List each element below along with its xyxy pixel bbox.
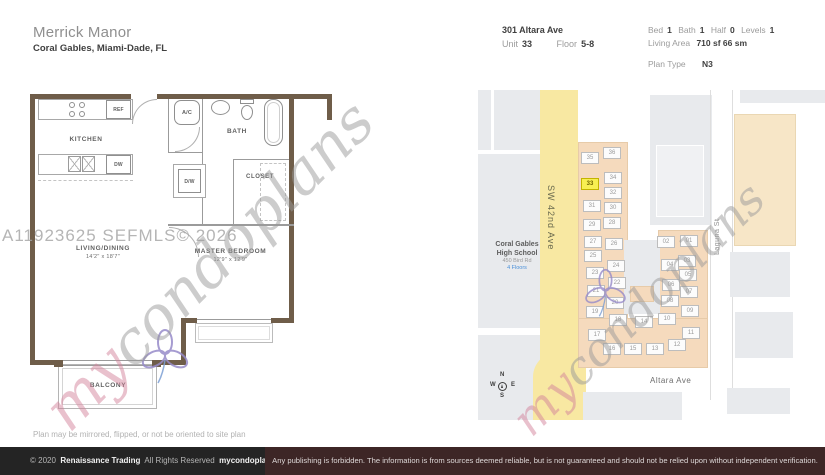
siteplan: SW 42nd Ave Laguna St Altara Ave 0102030… (478, 90, 825, 420)
stove-burner (79, 111, 85, 117)
interior-wall (233, 159, 234, 225)
compass-e: E (511, 382, 515, 388)
wall-segment (327, 94, 332, 120)
footer-company: Renaissance Trading (60, 456, 140, 465)
site-unit-27: 27 (584, 236, 602, 248)
levels-label: Levels (741, 25, 766, 35)
site-unit-17: 17 (588, 329, 606, 341)
school-line1: Coral Gables (486, 240, 548, 249)
site-unit-14: 14 (635, 316, 653, 328)
living-dining-label: LIVING/DINING (63, 245, 143, 252)
dishwasher: DW (106, 155, 131, 174)
toilet-bowl (241, 105, 253, 120)
stove-burner (79, 102, 85, 108)
site-unit-31: 31 (583, 200, 601, 212)
site-unit-02: 02 (657, 236, 675, 248)
site-unit-08: 08 (661, 295, 679, 307)
footer-copyright-line: © 2020 Renaissance Trading All Rights Re… (30, 447, 281, 475)
site-unit-26: 26 (605, 238, 623, 250)
footer-year: © 2020 (30, 456, 56, 465)
toilet-tank (240, 99, 254, 104)
floor-label: Floor (557, 39, 578, 49)
kitchen-label: KITCHEN (46, 136, 126, 143)
kitchen-sink (68, 156, 81, 172)
site-unit-16: 16 (603, 343, 621, 355)
living-area-value: 710 sf 66 sm (696, 38, 747, 48)
bath-value: 1 (700, 25, 705, 35)
site-unit-06: 06 (662, 279, 680, 291)
site-unit-09: 09 (681, 305, 699, 317)
bed-value: 1 (667, 25, 672, 35)
mls-watermark: A11923625 SEFMLS© 2026 (2, 226, 238, 246)
living-dining-dims: 14'2" x 18'7" (63, 254, 143, 260)
floorplan: REF DW KITCHEN A/C D/W BATH CLOSET LIVIN… (28, 90, 340, 424)
master-bedroom-dims: 12'9" x 12'9" (188, 257, 273, 263)
compass-n: N (500, 372, 504, 378)
site-unit-04: 04 (661, 259, 679, 271)
school-label: Coral Gables High School 450 Bird Rd 4 F… (486, 240, 548, 272)
page: Merrick Manor Coral Gables, Miami-Dade, … (0, 0, 825, 475)
site-unit-32: 32 (604, 187, 622, 199)
stats-block: Bed1 Bath1 Half0 Levels1 Living Area 710… (648, 25, 778, 69)
site-unit-36: 36 (603, 147, 621, 159)
school-line4: 4 Floors (486, 265, 548, 272)
site-unit-28: 28 (603, 217, 621, 229)
wall-segment (289, 94, 294, 323)
living-area-label: Living Area (648, 38, 690, 48)
school-line2: High School (486, 249, 548, 258)
page-title: Merrick Manor (33, 24, 167, 41)
half-value: 0 (730, 25, 735, 35)
school-line3: 450 Bird Rd (486, 258, 548, 265)
bath-door-arc (175, 127, 200, 152)
site-unit-29: 29 (583, 219, 601, 231)
unit-label: Unit (502, 39, 518, 49)
master-bedroom-label: MASTER BEDROOM (188, 248, 273, 255)
footer-disclaimer-panel: Any publishing is forbidden. The informa… (265, 447, 825, 475)
interior-wall (168, 99, 169, 152)
site-unit-30: 30 (604, 202, 622, 214)
stove-burner (69, 102, 75, 108)
address-block: 301 Altara Ave Unit33 Floor5-8 (502, 25, 598, 49)
site-unit-03: 03 (678, 255, 696, 267)
levels-value: 1 (770, 25, 775, 35)
entry-door-arc (132, 99, 157, 124)
balcony-label: BALCONY (73, 382, 143, 389)
trillium-flower-watermark (140, 328, 190, 385)
compass: N W E S (490, 372, 516, 404)
address: 301 Altara Ave (502, 25, 598, 35)
wall-segment (54, 360, 63, 367)
site-unit-35: 35 (581, 152, 599, 164)
compass-rose-icon (498, 382, 507, 391)
bath-label: BATH (211, 128, 263, 135)
unit-value: 33 (522, 39, 532, 49)
site-unit-34: 34 (604, 172, 622, 184)
bed-label: Bed (648, 25, 663, 35)
ac-closet: A/C (174, 100, 200, 125)
site-unit-01: 01 (680, 235, 698, 247)
site-unit-12: 12 (668, 339, 686, 351)
building-header: Merrick Manor Coral Gables, Miami-Dade, … (33, 24, 167, 54)
plan-orientation-note: Plan may be mirrored, flipped, or not be… (33, 430, 246, 439)
footer-bar: © 2020 Renaissance Trading All Rights Re… (0, 447, 825, 475)
site-unit-33: 33 (581, 178, 599, 190)
compass-w: W (490, 382, 496, 388)
interior-wall (202, 99, 203, 225)
washer-dryer: D/W (178, 169, 201, 193)
bath-sink (211, 100, 230, 115)
site-unit-07: 07 (680, 286, 698, 298)
bedroom-terrace-rail-inner (198, 326, 270, 340)
counter-overhang (38, 180, 133, 181)
site-unit-05: 05 (679, 269, 697, 281)
interior-wall (168, 152, 203, 153)
footer-rights: All Rights Reserved (144, 456, 214, 465)
refrigerator: REF (106, 100, 131, 119)
site-unit-11: 11 (682, 327, 700, 339)
kitchen-sink (82, 156, 95, 172)
footer-disclaimer: Any publishing is forbidden. The informa… (265, 447, 825, 475)
compass-s: S (500, 393, 504, 399)
stove-burner (69, 111, 75, 117)
site-unit-15: 15 (624, 343, 642, 355)
half-label: Half (711, 25, 726, 35)
interior-wall (233, 159, 289, 160)
bath-label: Bath (678, 25, 696, 35)
floor-value: 5-8 (581, 39, 594, 49)
wall-segment (271, 318, 294, 323)
site-unit-10: 10 (658, 313, 676, 325)
trillium-flower-watermark (583, 268, 628, 318)
page-subtitle: Coral Gables, Miami-Dade, FL (33, 43, 167, 54)
bathtub-inner (267, 102, 280, 143)
plan-type-label: Plan Type (648, 59, 686, 69)
plan-type-value: N3 (702, 59, 713, 69)
closet-shelving (260, 163, 286, 221)
compass-needle (501, 384, 503, 388)
site-unit-25: 25 (584, 250, 602, 262)
closet-label: CLOSET (233, 174, 287, 180)
site-unit-13: 13 (646, 343, 664, 355)
